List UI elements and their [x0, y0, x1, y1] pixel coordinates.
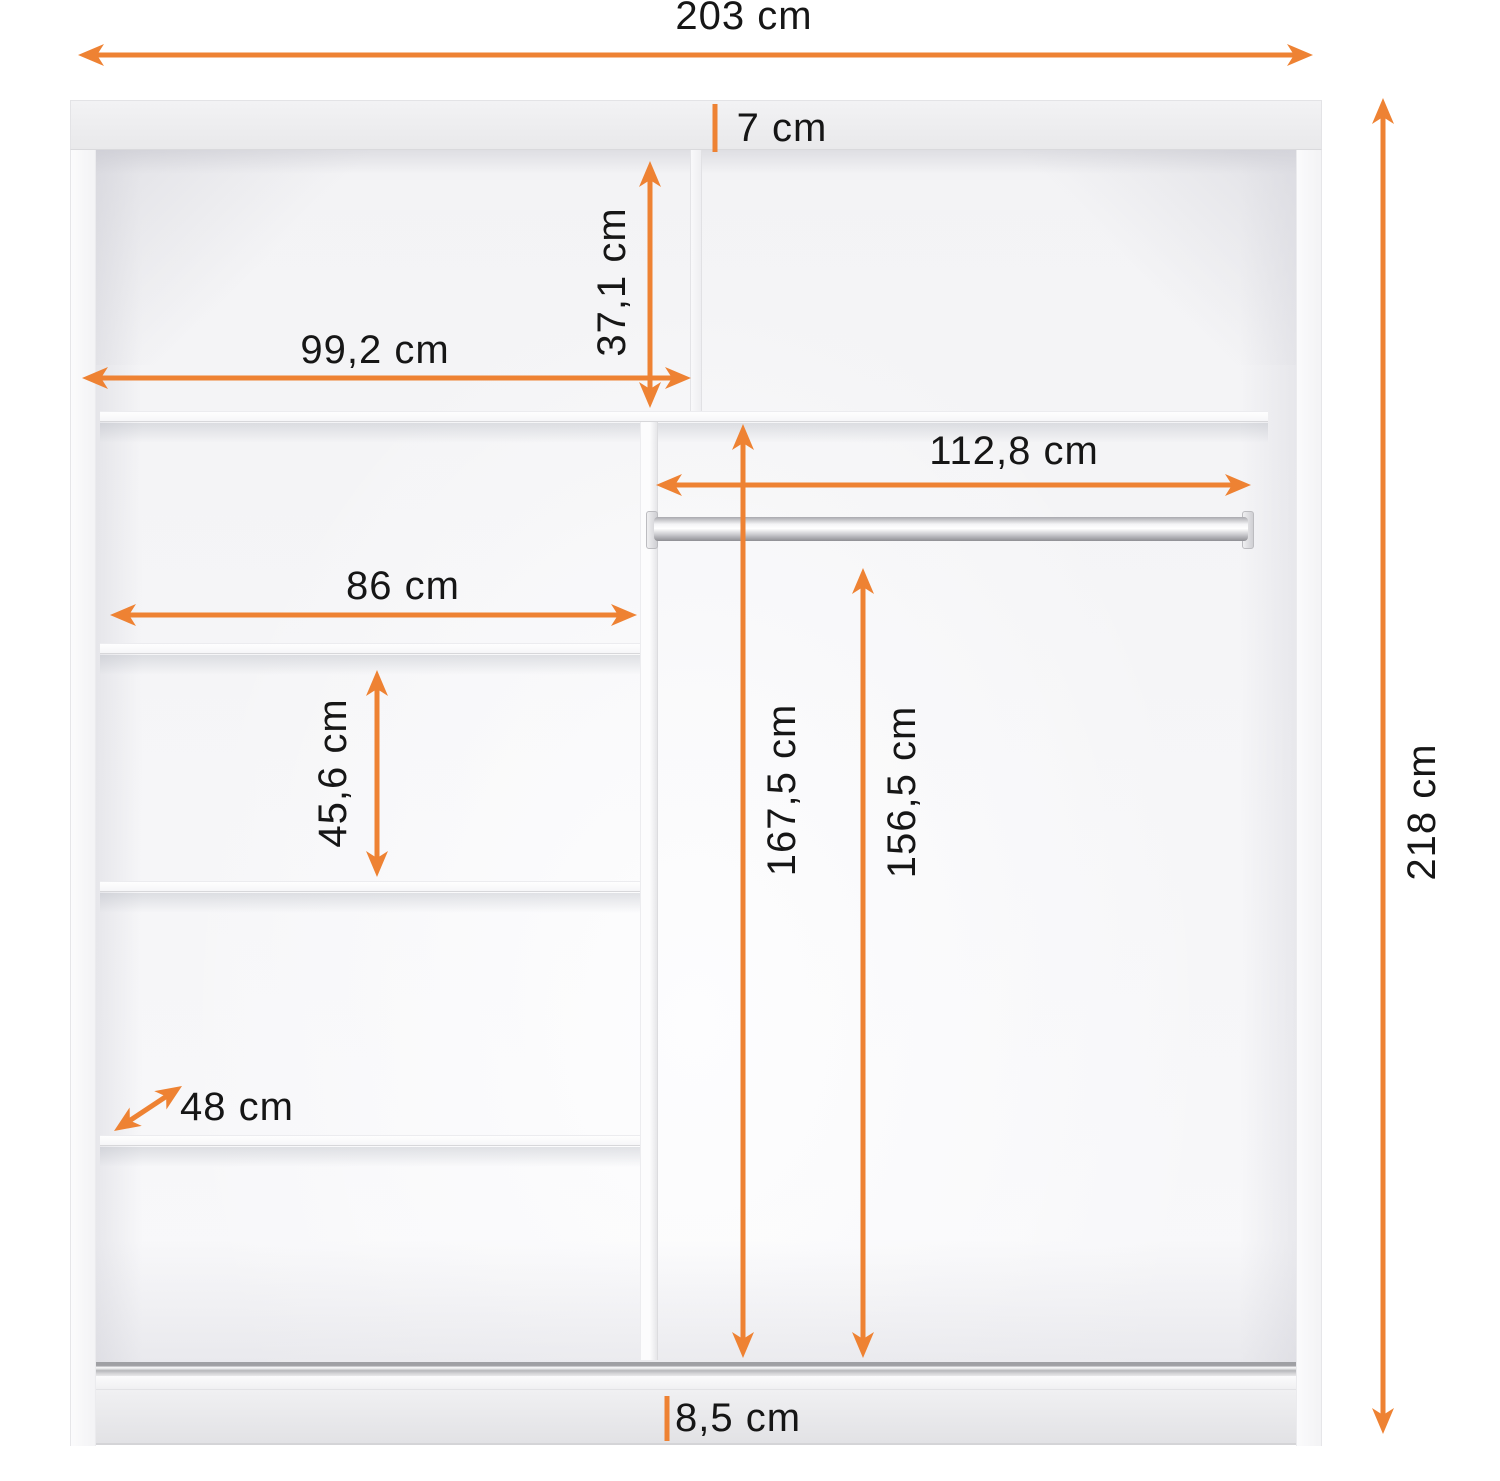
top-panel: [70, 100, 1322, 150]
upper-vertical-divider: [690, 150, 702, 411]
left-shelf-4: [100, 1135, 640, 1146]
left-side-panel: [70, 150, 96, 1446]
interior-floor-shadow: [96, 1240, 1296, 1362]
wardrobe-dimension-diagram: 203 cm 7 cm 37,1 cm 99,2 cm 112,8 cm 86 …: [0, 0, 1500, 1481]
bottom-panel-front-edge: [96, 1376, 1296, 1390]
dim-label-plinth-height: 8,5 cm: [675, 1398, 801, 1438]
sliding-door-rails: [96, 1362, 1296, 1376]
left-shelf-3: [100, 881, 640, 892]
dim-label-left-interior-height: 167,5 cm: [762, 704, 802, 877]
center-vertical-divider: [640, 422, 658, 1360]
dim-label-right-compartment-width: 112,8 cm: [929, 431, 1099, 471]
dim-label-rod-height: 156,5 cm: [882, 706, 922, 879]
dim-label-shelf-spacing-height: 45,6 cm: [313, 698, 353, 847]
dim-label-total-width: 203 cm: [675, 0, 812, 36]
interior-right-wall-shadow: [1240, 150, 1296, 1362]
dim-label-left-compartment-width: 99,2 cm: [300, 330, 449, 370]
hanging-rod: [654, 517, 1248, 541]
dim-label-upper-compartment-height: 37,1 cm: [592, 207, 632, 356]
dim-label-shelf-width: 86 cm: [346, 566, 460, 606]
dim-label-depth: 48 cm: [180, 1087, 294, 1127]
dim-label-total-height: 218 cm: [1402, 743, 1442, 880]
top-shelf: [100, 411, 1268, 422]
right-side-panel: [1296, 150, 1322, 1446]
left-shelf-2: [100, 643, 640, 654]
interior-left-wall-shadow: [96, 150, 142, 1362]
dim-label-top-panel: 7 cm: [737, 108, 828, 148]
